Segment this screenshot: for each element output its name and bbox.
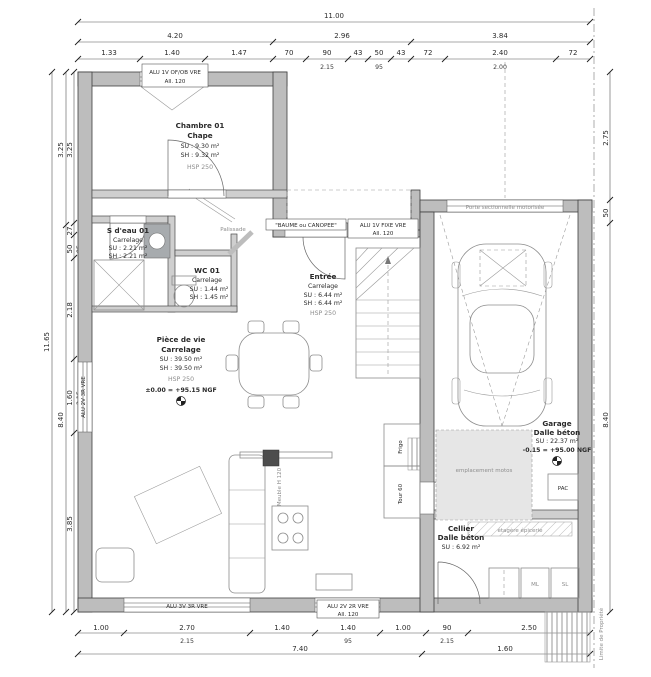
living-window-label: ALU 3V 3R VRE <box>166 604 208 610</box>
svg-text:3.25: 3.25 <box>57 142 65 158</box>
level-marker <box>553 457 562 466</box>
moto-label: emplacement motos <box>456 468 513 474</box>
wall-house-garage <box>420 212 434 612</box>
chair <box>310 355 322 371</box>
svg-text:SH : 1.45 m²: SH : 1.45 m² <box>190 294 229 301</box>
wall-wc-north <box>175 250 231 256</box>
svg-text:3.85: 3.85 <box>66 516 74 532</box>
svg-text:1.40: 1.40 <box>164 49 180 57</box>
wc-label: WC 01 Carrelage SU : 1.44 m² SH : 1.45 m… <box>190 266 229 301</box>
wheel <box>452 378 460 404</box>
entry-door-label: "BAUME ou CANOPEE" <box>275 223 337 229</box>
entry-fixed-label: ALU 1V FIXE VRE <box>360 223 407 229</box>
stairs <box>356 248 420 470</box>
bedroom-window-label: ALU 1V OF/OB VRE <box>149 70 201 76</box>
shower-room-label: S d'eau 01 Carrelage SU : 2.21 m² SH : 2… <box>107 226 149 260</box>
wheel <box>544 378 552 404</box>
svg-text:2.18: 2.18 <box>66 302 74 318</box>
kitchen-window-label: ALU 2V 2R VRE <box>327 604 369 610</box>
svg-text:SU : 6.92 m²: SU : 6.92 m² <box>442 544 481 551</box>
living-label: Pièce de vie Carrelage SU : 39.50 m² SH … <box>145 335 216 406</box>
svg-text:72: 72 <box>569 49 578 57</box>
heat-pump-label: PAC <box>558 486 569 492</box>
armchair <box>96 548 134 582</box>
svg-text:HSP 250: HSP 250 <box>168 376 194 383</box>
svg-text:2.96: 2.96 <box>334 32 350 40</box>
svg-text:1.60: 1.60 <box>66 390 74 406</box>
svg-text:All. 120: All. 120 <box>338 612 359 618</box>
washing-machine-label: ML <box>531 582 540 588</box>
rug <box>134 466 221 544</box>
sink-unit <box>316 574 352 590</box>
svg-text:All. 120: All. 120 <box>165 79 186 85</box>
svg-text:90: 90 <box>443 624 452 632</box>
kitchen: Meuble H 120 Frigo Tour 60 <box>240 424 420 590</box>
svg-text:Garage: Garage <box>542 419 571 428</box>
svg-text:Carrelage: Carrelage <box>113 237 143 244</box>
entry-label: Entrée Carrelage SU : 6.44 m² SH : 6.44 … <box>304 272 343 317</box>
electrical-panel <box>408 438 420 470</box>
moto-area <box>436 430 532 520</box>
wall-west <box>78 72 92 612</box>
level-marker <box>177 397 186 406</box>
svg-text:SU : 2.21 m²: SU : 2.21 m² <box>109 245 148 252</box>
svg-text:Carrelage: Carrelage <box>308 283 338 290</box>
svg-text:SU : 22.37 m²: SU : 22.37 m² <box>536 438 579 445</box>
svg-text:7.40: 7.40 <box>292 645 308 653</box>
svg-text:95: 95 <box>344 638 352 645</box>
chair <box>226 355 238 371</box>
bathroom-fixtures <box>94 224 196 310</box>
door-clearance-lines <box>440 215 570 426</box>
bedroom-label: Chambre 01 Chape SU : 9.30 m² SH : 9.32 … <box>176 121 225 171</box>
svg-text:S d'eau 01: S d'eau 01 <box>107 226 149 235</box>
svg-text:1.40: 1.40 <box>274 624 290 632</box>
bedroom-door-opening <box>168 190 226 198</box>
garage-door-label: Porte sectionnelle motorisée <box>466 204 545 211</box>
svg-text:43: 43 <box>354 49 363 57</box>
svg-text:SH : 2.21 m²: SH : 2.21 m² <box>109 253 148 260</box>
bath-door-opening <box>110 216 146 223</box>
svg-text:SU : 1.44 m²: SU : 1.44 m² <box>190 286 229 293</box>
svg-text:Dalle béton: Dalle béton <box>534 428 581 437</box>
svg-text:2.70: 2.70 <box>179 624 195 632</box>
cabinet-label: Meuble H 120 <box>277 467 283 506</box>
floor-plan-drawing: 11.00 4.20 2.96 3.84 1.33 1.40 1.47 70 9… <box>0 0 651 677</box>
dim-total-height: 11.65 <box>43 332 51 352</box>
svg-text:2.15: 2.15 <box>180 638 194 645</box>
pantry-shelf-label: étagère épicerie <box>497 527 543 534</box>
svg-text:2.40: 2.40 <box>492 49 508 57</box>
svg-text:Dalle béton: Dalle béton <box>438 533 485 542</box>
dimensions-left: 11.65 3.25 8.40 3.25 27 50 95 2.18 1.60 … <box>43 69 83 615</box>
dimensions-bottom: 1.00 2.70 2.15 1.40 1.40 95 1.00 90 2.15… <box>75 624 593 657</box>
svg-text:70: 70 <box>285 49 294 57</box>
chair <box>283 321 299 333</box>
chair <box>248 321 264 333</box>
dryer-label: SL <box>562 582 569 588</box>
svg-text:SH : 9.32 m²: SH : 9.32 m² <box>181 152 220 159</box>
stairs-arrow <box>385 256 391 264</box>
svg-text:Chambre 01: Chambre 01 <box>176 121 225 130</box>
living-level: ±0.00 = +95.15 NGF <box>145 387 216 394</box>
dimensions-right: 2.75 50 8.40 Limite de Propriété <box>594 8 613 668</box>
svg-text:Carrelage: Carrelage <box>161 345 201 354</box>
dining-table <box>239 333 309 395</box>
svg-text:SU : 39.50 m²: SU : 39.50 m² <box>160 356 203 363</box>
svg-text:72: 72 <box>424 49 433 57</box>
floor-plan: 11.00 4.20 2.96 3.84 1.33 1.40 1.47 70 9… <box>0 0 651 677</box>
svg-text:1.33: 1.33 <box>101 49 117 57</box>
svg-text:1.00: 1.00 <box>93 624 109 632</box>
svg-text:SU : 6.44 m²: SU : 6.44 m² <box>304 292 343 299</box>
svg-text:HSP 250: HSP 250 <box>187 164 213 171</box>
svg-text:3.84: 3.84 <box>492 32 508 40</box>
svg-text:4.20: 4.20 <box>167 32 183 40</box>
car-roof <box>470 305 534 373</box>
dim-total-width: 11.00 <box>324 12 344 20</box>
svg-text:50: 50 <box>66 245 74 254</box>
svg-text:Entrée: Entrée <box>310 272 337 281</box>
wall-bath-south <box>92 306 237 312</box>
tall-unit-label: Tour 60 <box>398 483 404 505</box>
dimensions-top: 11.00 4.20 2.96 3.84 1.33 1.40 1.47 70 9… <box>75 12 593 71</box>
burner <box>293 533 303 543</box>
svg-text:Cellier: Cellier <box>448 524 474 533</box>
furniture-living <box>96 321 322 593</box>
svg-text:43: 43 <box>397 49 406 57</box>
svg-text:50: 50 <box>602 209 610 218</box>
svg-text:Carrelage: Carrelage <box>192 277 222 284</box>
car-body <box>458 244 546 426</box>
burner <box>278 513 288 523</box>
svg-text:90: 90 <box>323 49 332 57</box>
fridge-label: Frigo <box>398 440 404 454</box>
garage-level: -0.15 = +95.00 NGF <box>523 447 592 454</box>
svg-text:HSP 250: HSP 250 <box>310 310 336 317</box>
svg-text:1.00: 1.00 <box>395 624 411 632</box>
window-opening-symbol <box>140 86 205 110</box>
left-window-label: ALU 2V 3R VRE <box>81 376 87 418</box>
svg-text:95: 95 <box>375 64 383 71</box>
svg-text:2.15: 2.15 <box>320 64 334 71</box>
svg-text:SU : 9.30 m²: SU : 9.30 m² <box>181 143 220 150</box>
cellier-content: étagère épicerie ML SL <box>468 522 579 598</box>
stove <box>263 450 279 466</box>
svg-text:2.75: 2.75 <box>602 130 610 146</box>
svg-text:SH : 39.50 m²: SH : 39.50 m² <box>160 365 203 372</box>
wall-garage-east <box>578 200 592 612</box>
svg-text:WC 01: WC 01 <box>194 266 220 275</box>
property-limit-label: Limite de Propriété <box>598 607 605 660</box>
wall-bedroom-east <box>273 72 287 237</box>
porch-area <box>287 190 411 223</box>
svg-text:2.50: 2.50 <box>521 624 537 632</box>
svg-text:Chape: Chape <box>187 131 212 140</box>
burner <box>293 513 303 523</box>
svg-text:1.60: 1.60 <box>497 645 513 653</box>
svg-text:27: 27 <box>66 227 74 236</box>
svg-text:SH : 6.44 m²: SH : 6.44 m² <box>304 300 343 307</box>
svg-text:3.25: 3.25 <box>66 142 74 158</box>
svg-text:8.40: 8.40 <box>602 412 610 428</box>
svg-text:All. 120: All. 120 <box>373 231 394 237</box>
walkway-strip <box>545 612 590 662</box>
svg-text:2.15: 2.15 <box>440 638 454 645</box>
palissade-label: Palissade <box>220 227 246 233</box>
svg-text:1.47: 1.47 <box>231 49 247 57</box>
svg-text:50: 50 <box>375 49 384 57</box>
chair <box>248 396 264 408</box>
washbasin <box>149 233 165 249</box>
garage-house-door-opening <box>420 482 434 514</box>
svg-text:Pièce de vie: Pièce de vie <box>157 335 206 344</box>
burner <box>278 533 288 543</box>
svg-text:1.40: 1.40 <box>340 624 356 632</box>
svg-text:8.40: 8.40 <box>57 412 65 428</box>
chair <box>283 396 299 408</box>
cooktop-unit <box>272 506 308 550</box>
